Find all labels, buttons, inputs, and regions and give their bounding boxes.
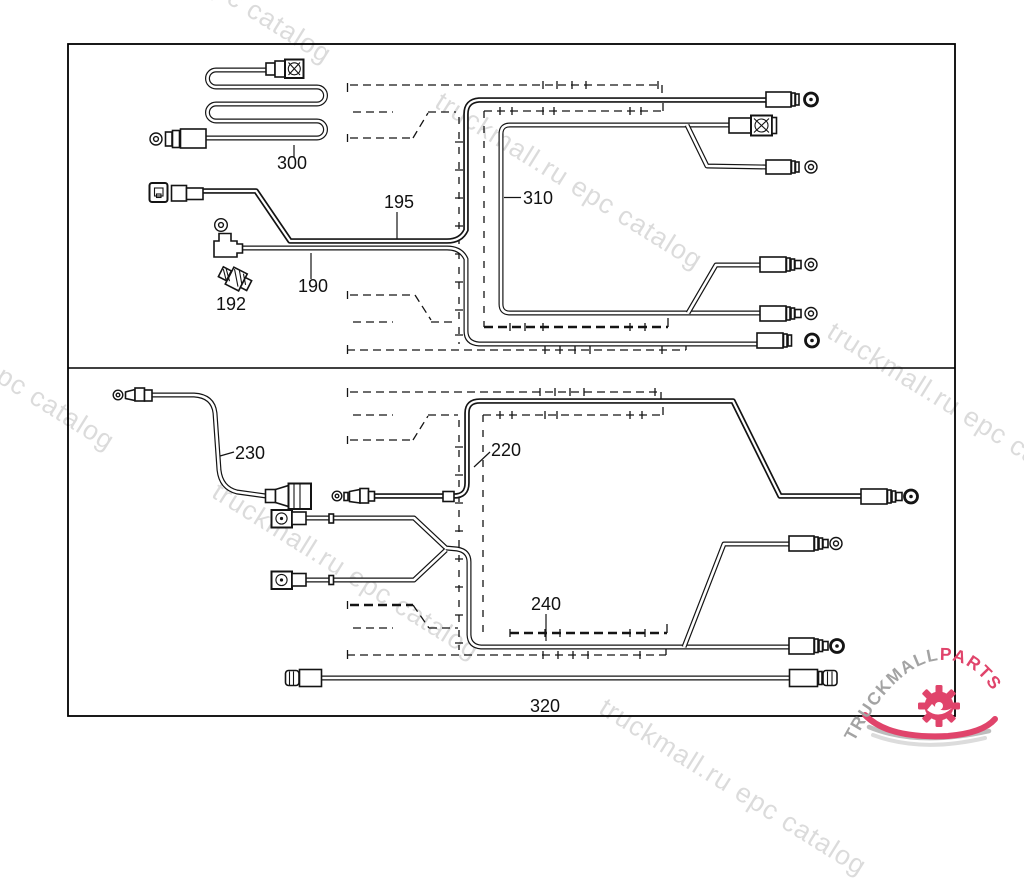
connector-300-plug-left	[150, 129, 206, 148]
harness-310-cable	[501, 125, 766, 313]
truckmall-parts-logo: TRUCKMALLPARTS	[843, 643, 1024, 750]
connector-310-end-b	[760, 257, 817, 272]
connector-220-plug-left	[332, 489, 374, 504]
parts-diagram-canvas: 300 195 310 190 192 230 220 240 320	[0, 0, 1024, 750]
part-label-300[interactable]: 300	[277, 153, 307, 173]
part-label-240[interactable]: 240	[531, 594, 561, 614]
connector-300-antenna-plug	[266, 60, 304, 79]
harness-220-cable	[374, 401, 861, 502]
connector-190-end-bottom	[757, 333, 819, 348]
harness-300-cable	[206, 70, 326, 138]
connector-310-fakra-antenna	[729, 116, 777, 136]
part-label-320[interactable]: 320	[530, 696, 560, 716]
connector-230-fakra	[266, 484, 312, 510]
part-label-190[interactable]: 190	[298, 276, 328, 296]
part-label-310[interactable]: 310	[523, 188, 553, 208]
clip-192	[217, 263, 254, 294]
logo-gear-icon	[918, 685, 960, 727]
connector-320-right	[790, 670, 838, 687]
cable-splice-marker	[443, 492, 454, 502]
leader-lines	[220, 145, 546, 641]
part-label-195[interactable]: 195	[384, 192, 414, 212]
part-label-192[interactable]: 192	[216, 294, 246, 314]
connector-190-right-angle	[214, 219, 243, 257]
part-label-230[interactable]: 230	[235, 443, 265, 463]
connector-240-end-b	[789, 638, 844, 654]
connector-190-end-top	[766, 92, 818, 107]
connector-310-end-a	[766, 160, 817, 174]
harness-240-cable	[306, 518, 789, 647]
connector-310-end-c	[760, 306, 817, 321]
connector-240-end-a	[789, 536, 842, 551]
connector-230-plug-left	[113, 388, 152, 401]
connector-220-end-right	[861, 489, 918, 504]
part-label-220[interactable]: 220	[491, 440, 521, 460]
connector-190-flange	[150, 183, 168, 202]
logo-suffix-text: PARTS	[940, 644, 1007, 694]
connector-320-left	[286, 670, 322, 687]
lower-dashed-guides	[347, 388, 667, 659]
connector-190-plug	[172, 186, 204, 202]
